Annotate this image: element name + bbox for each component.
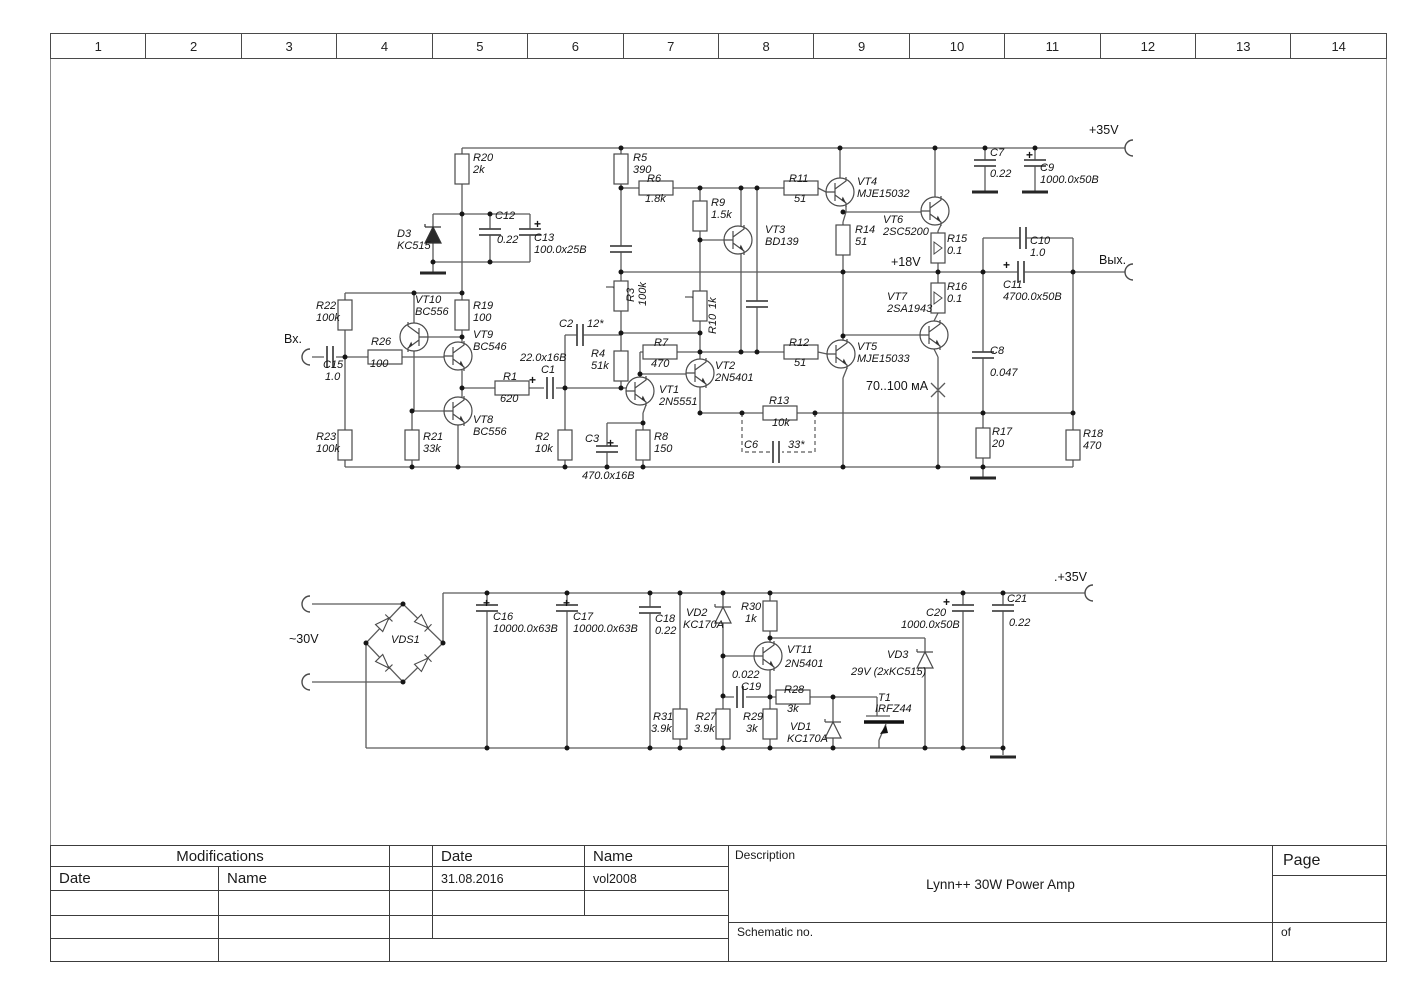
resistor-R8 <box>636 430 650 460</box>
resistor-R12 <box>784 345 818 359</box>
page-header: Page <box>1272 845 1387 876</box>
name-value: vol2008 <box>584 866 729 891</box>
resistor-R28 <box>776 690 810 704</box>
capacitor-C13 <box>519 229 541 235</box>
empty-cell <box>432 915 729 939</box>
zener-VD1 <box>825 719 841 738</box>
revision-cell <box>389 866 433 891</box>
empty-cell <box>584 890 729 916</box>
empty-cell <box>50 890 219 916</box>
resistor-R6 <box>639 181 673 195</box>
resistor-R17 <box>976 428 990 458</box>
bridge-rectifier-VDS1 <box>376 614 432 671</box>
capacitor-C1 <box>547 377 553 399</box>
capacitor-C17 <box>556 605 578 611</box>
transistor-VT2 <box>686 358 714 388</box>
empty-cell <box>50 938 219 962</box>
transistor-VT3 <box>724 225 752 255</box>
psu-wires <box>312 593 1085 755</box>
resistor-R14 <box>836 225 850 255</box>
revision-cell <box>389 845 433 867</box>
zener-VD3 <box>917 649 933 668</box>
transistor-VT9 <box>444 341 472 371</box>
name-header: Name <box>584 845 729 867</box>
resistor-R20 <box>455 154 469 184</box>
resistor-R16 <box>931 283 945 313</box>
zener-VD2 <box>715 604 731 623</box>
resistor-R7 <box>643 345 677 359</box>
capacitor-C6 <box>773 441 779 463</box>
capacitor-C8 <box>972 352 994 358</box>
resistor-R21 <box>405 430 419 460</box>
capacitor-C11 <box>1018 261 1024 283</box>
ac-input-connector <box>302 596 310 612</box>
transistor-VT8 <box>444 396 472 426</box>
resistor-R9 <box>693 201 707 231</box>
page-of-cell: of <box>1272 922 1387 962</box>
empty-cell <box>50 915 219 939</box>
transistor-VT6 <box>921 196 949 226</box>
resistor-R29 <box>763 709 777 739</box>
resistor-R23 <box>338 430 352 460</box>
components <box>302 140 1133 757</box>
resistor-R2 <box>558 430 572 460</box>
plus35v-connector <box>1125 140 1133 156</box>
empty-cell <box>389 938 729 962</box>
schematic-sheet: 1234567891011121314 <box>0 0 1414 1000</box>
empty-cell <box>389 915 433 939</box>
capacitor-C21 <box>992 605 1014 611</box>
capacitor-C10 <box>1020 227 1026 249</box>
capacitor-C5 <box>746 301 768 307</box>
resistor-R15 <box>931 233 945 263</box>
capacitor-C3 <box>596 446 618 452</box>
capacitor-C2 <box>577 324 583 346</box>
resistor-R30 <box>763 601 777 631</box>
amp-wires <box>312 148 1125 477</box>
capacitor-C16 <box>476 605 498 611</box>
schematic-no-cell: Schematic no. <box>728 922 1273 962</box>
resistor-R19 <box>455 300 469 330</box>
junction-dots <box>343 146 1076 751</box>
empty-cell <box>389 890 433 916</box>
capacitor-C15 <box>327 346 333 368</box>
ac-input-connector <box>302 674 310 690</box>
resistor-R26 <box>368 350 402 364</box>
resistor-R27 <box>716 709 730 739</box>
resistor-R1 <box>495 381 529 395</box>
empty-cell <box>218 890 390 916</box>
modifications-header: Modifications <box>50 845 390 867</box>
resistor-R5 <box>614 154 628 184</box>
transistor-VT5 <box>827 339 855 369</box>
resistor-R18 <box>1066 430 1080 460</box>
name-column-label: Name <box>218 866 390 891</box>
resistor-R4 <box>614 351 628 381</box>
resistor-R13 <box>763 406 797 420</box>
capacitor-C9 <box>1024 160 1046 166</box>
empty-cell <box>432 890 585 916</box>
capacitor-C7 <box>974 160 996 166</box>
transistor-VT10 <box>400 322 428 352</box>
transistor-VT4 <box>826 177 854 207</box>
resistor-R3 <box>614 281 628 311</box>
resistor-R31 <box>673 709 687 739</box>
output-connector <box>1125 264 1133 280</box>
description-cell: Description Lynn++ 30W Power Amp <box>728 845 1273 923</box>
resistor-R11 <box>784 181 818 195</box>
description-label: Description <box>735 848 795 862</box>
capacitor-C20 <box>952 605 974 611</box>
page-value-cell <box>1272 875 1387 923</box>
date-value: 31.08.2016 <box>432 866 585 891</box>
empty-cell <box>218 915 390 939</box>
resistor-R22 <box>338 300 352 330</box>
zener-D3 <box>425 224 441 243</box>
empty-cell <box>218 938 390 962</box>
transistor-VT7 <box>920 320 948 350</box>
capacitor-C18 <box>639 607 661 613</box>
date-header: Date <box>432 845 585 867</box>
psu-output-connector <box>1085 585 1093 601</box>
capacitor-C12 <box>479 229 501 235</box>
schematic-title: Lynn++ 30W Power Amp <box>729 877 1272 892</box>
date-column-label: Date <box>50 866 219 891</box>
transistor-VT11 <box>754 641 782 671</box>
resistor-R10 <box>693 291 707 321</box>
mosfet-arrow <box>880 725 888 734</box>
capacitor-C4 <box>610 246 632 252</box>
input-connector <box>302 349 310 365</box>
capacitor-C19 <box>737 686 743 708</box>
transistor-VT1 <box>626 376 654 406</box>
